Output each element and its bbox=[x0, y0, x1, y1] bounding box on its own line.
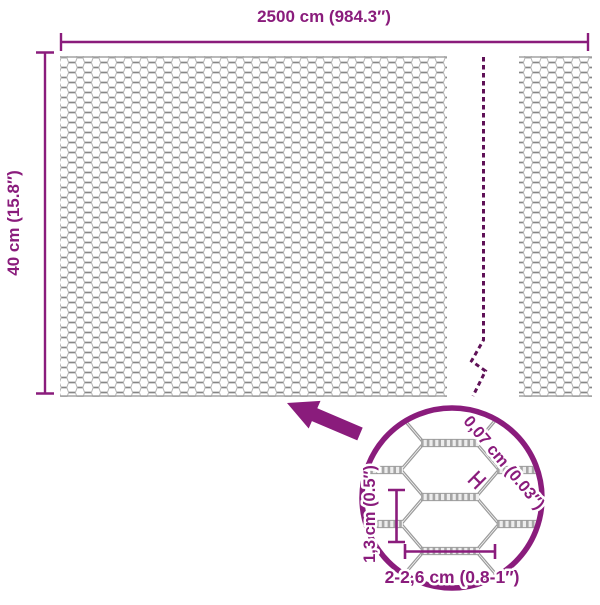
left-dimension: 40 cm (15.8″) bbox=[4, 53, 54, 394]
product-dimension-diagram: 2500 cm (984.3″) 40 cm (15.8″) 0,07 cm (… bbox=[0, 0, 600, 600]
length-break-dashed-line bbox=[472, 57, 486, 396]
mesh-texture bbox=[60, 56, 447, 397]
diagram-canvas: 2500 cm (984.3″) 40 cm (15.8″) 0,07 cm (… bbox=[0, 0, 600, 600]
height-dimension-label: 40 cm (15.8″) bbox=[4, 170, 23, 275]
cell-height-label: 1,3 cm (0.5″) bbox=[361, 465, 379, 563]
zoom-arrow-icon bbox=[287, 401, 363, 441]
mesh-texture bbox=[519, 56, 592, 397]
mesh-panel-right bbox=[519, 56, 592, 397]
top-dimension: 2500 cm (984.3″) bbox=[61, 7, 588, 51]
cell-width-label: 2-2,6 cm (0.8-1″) bbox=[385, 567, 520, 587]
detail-circle: 0,07 cm (0.03″) 1,3 cm (0.5″) 2-2,6 cm (… bbox=[360, 406, 548, 591]
width-dimension-label: 2500 cm (984.3″) bbox=[257, 7, 391, 26]
mesh-panel-main bbox=[60, 56, 447, 397]
